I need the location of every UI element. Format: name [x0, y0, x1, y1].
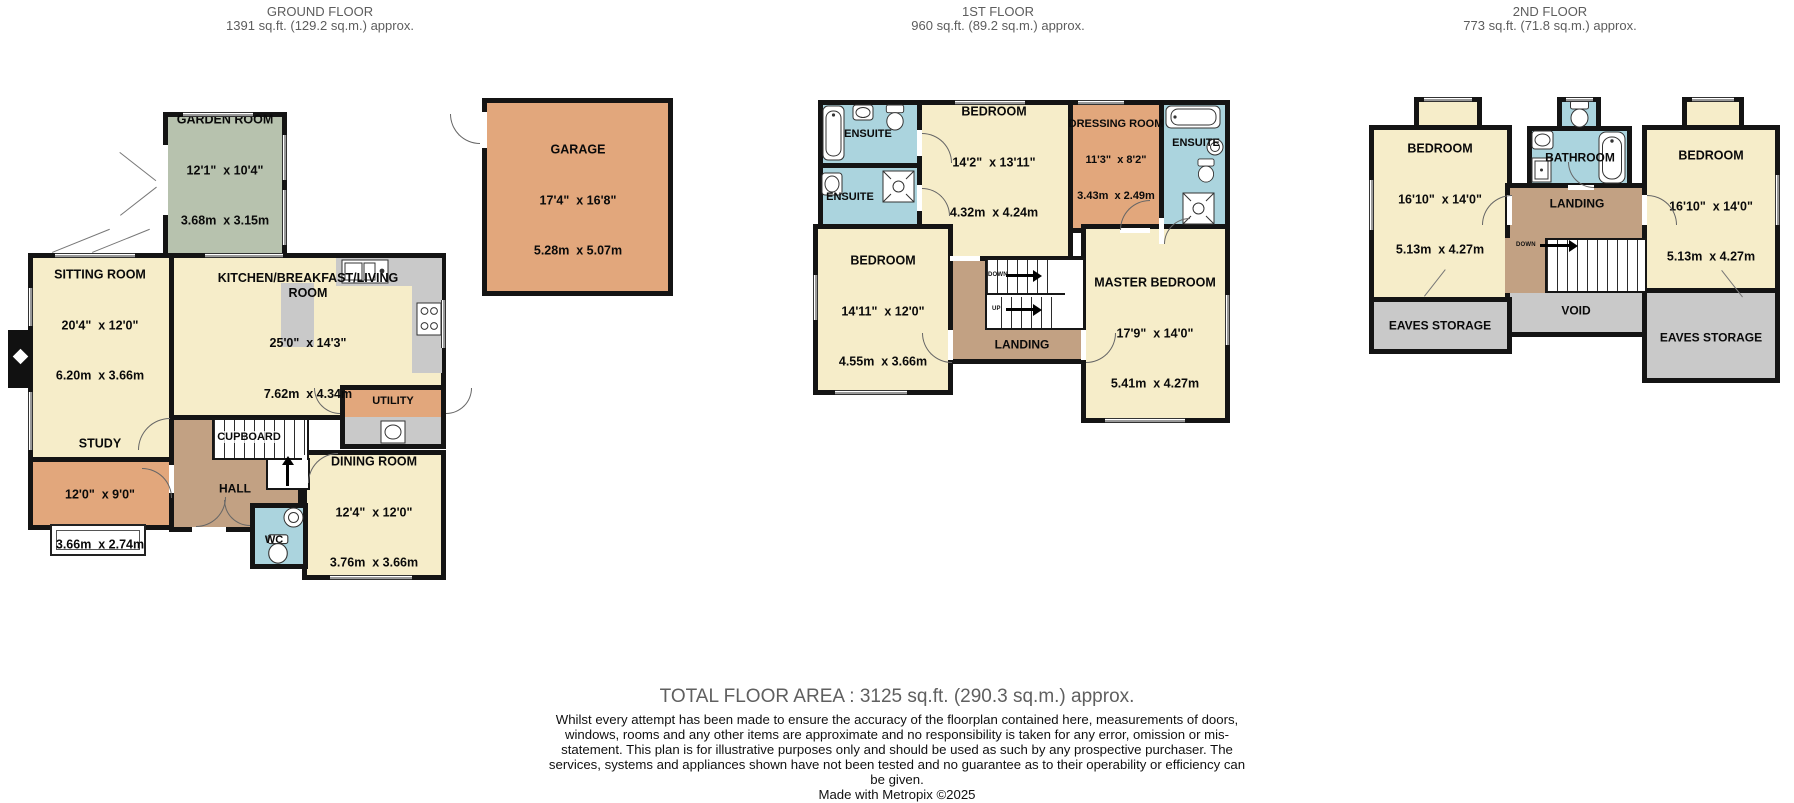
- door-swing: [446, 388, 472, 414]
- toilet-icon: [884, 104, 906, 131]
- door-swing: [450, 114, 480, 144]
- label-bedroom-2: BEDROOM 14'11" x 12'0" 4.55m x 3.66m: [839, 217, 927, 405]
- second-floor-header: 2ND FLOOR 773 sq.ft. (71.8 sq.m.) approx…: [1300, 5, 1794, 33]
- door-opening: [302, 455, 307, 485]
- sink-icon: [283, 507, 304, 528]
- first-floor-header: 1ST FLOOR 960 sq.ft. (89.2 sq.m.) approx…: [748, 5, 1248, 33]
- window: [1566, 97, 1593, 102]
- total-floor-area: TOTAL FLOOR AREA : 3125 sq.ft. (290.3 sq…: [0, 686, 1794, 708]
- bathtub-icon: [822, 105, 845, 161]
- floor-title: 2ND FLOOR: [1300, 5, 1794, 19]
- stairs-up-text: UP: [992, 306, 1001, 312]
- ground-floor-header: GROUND FLOOR 1391 sq.ft. (129.2 sq.m.) a…: [20, 5, 620, 33]
- room-landing-2: [1505, 183, 1647, 243]
- floor-title: 1ST FLOOR: [748, 5, 1248, 19]
- window: [282, 190, 287, 245]
- stairs-down-arrow: [1006, 274, 1034, 277]
- label-bedroom-right: BEDROOM 16'10" x 14'0" 5.13m x 4.27m: [1667, 112, 1755, 300]
- label-utility: UTILITY: [372, 395, 414, 407]
- window: [1692, 97, 1734, 102]
- window: [1775, 175, 1780, 225]
- garden-door-opening: [163, 145, 168, 215]
- floor-title: GROUND FLOOR: [20, 5, 620, 19]
- floor-area: 1391 sq.ft. (129.2 sq.m.) approx.: [20, 19, 620, 33]
- floor-area: 960 sq.ft. (89.2 sq.m.) approx.: [748, 19, 1248, 33]
- disclaimer-text: Whilst every attempt has been made to en…: [547, 713, 1247, 788]
- label-bedroom-left: BEDROOM 16'10" x 14'0" 5.13m x 4.27m: [1396, 105, 1484, 293]
- window: [205, 253, 283, 258]
- window: [813, 275, 818, 320]
- label-hall: HALL: [219, 483, 251, 496]
- sink-icon: [1531, 130, 1554, 150]
- window: [441, 300, 446, 348]
- bathtub-icon: [1165, 105, 1221, 129]
- garage-door-opening: [482, 112, 487, 148]
- window: [28, 392, 33, 450]
- door-opening: [950, 256, 980, 261]
- label-bedroom-1: BEDROOM 14'2" x 13'11" 4.32m x 4.24m: [950, 68, 1038, 256]
- window: [1424, 97, 1472, 102]
- window: [835, 390, 907, 395]
- door-leaf-line: [119, 152, 156, 181]
- label-eaves-storage-left: EAVES STORAGE: [1389, 320, 1491, 333]
- label-landing-1: LANDING: [995, 339, 1050, 352]
- window: [55, 253, 135, 258]
- window: [1369, 180, 1374, 230]
- window: [28, 288, 33, 326]
- stairs-up-arrow: [1006, 308, 1034, 311]
- label-ensuite-3: ENSUITE: [1172, 137, 1220, 149]
- chimney-breast: [8, 330, 30, 388]
- window: [330, 575, 412, 580]
- floor-area: 773 sq.ft. (71.8 sq.m.) approx.: [1300, 19, 1794, 33]
- sink-icon: [852, 104, 874, 121]
- floorplan-canvas: GROUND FLOOR 1391 sq.ft. (129.2 sq.m.) a…: [0, 0, 1794, 803]
- label-eaves-storage-right: EAVES STORAGE: [1660, 332, 1762, 345]
- metropix-credit: Made with Metropix ©2025: [0, 788, 1794, 803]
- stairs-down-text: DOWN: [988, 272, 1008, 278]
- label-ensuite-2: ENSUITE: [826, 191, 874, 203]
- label-study: STUDY 12'0" x 9'0" 3.66m x 2.74m: [56, 400, 144, 588]
- stairs-down-arrow: [1540, 244, 1570, 247]
- window: [282, 135, 287, 180]
- label-wc: WC: [265, 534, 283, 546]
- footer: TOTAL FLOOR AREA : 3125 sq.ft. (290.3 sq…: [0, 686, 1794, 802]
- window: [1105, 418, 1185, 423]
- shower-icon: [882, 170, 915, 203]
- toilet-icon: [1196, 158, 1216, 183]
- label-void: VOID: [1561, 305, 1590, 318]
- window: [1225, 295, 1230, 345]
- window: [183, 112, 253, 117]
- label-ensuite-1: ENSUITE: [844, 128, 892, 140]
- label-landing-2: LANDING: [1550, 198, 1605, 211]
- stairs-down-text: DOWN: [1516, 242, 1536, 248]
- door-leaf-line: [120, 187, 157, 216]
- label-sitting-room: SITTING ROOM 20'4" x 12'0" 6.20m x 3.66m: [54, 231, 146, 419]
- label-garage: GARAGE 17'4" x 16'8" 5.28m x 5.07m: [534, 106, 622, 294]
- stove-icon: [416, 302, 442, 336]
- window: [955, 100, 1025, 105]
- stairs-up-arrow: [286, 464, 289, 486]
- toilet-icon: [1568, 100, 1591, 128]
- window: [1078, 100, 1124, 105]
- front-door-opening: [192, 527, 226, 532]
- label-cupboard: CUPBOARD: [215, 431, 283, 443]
